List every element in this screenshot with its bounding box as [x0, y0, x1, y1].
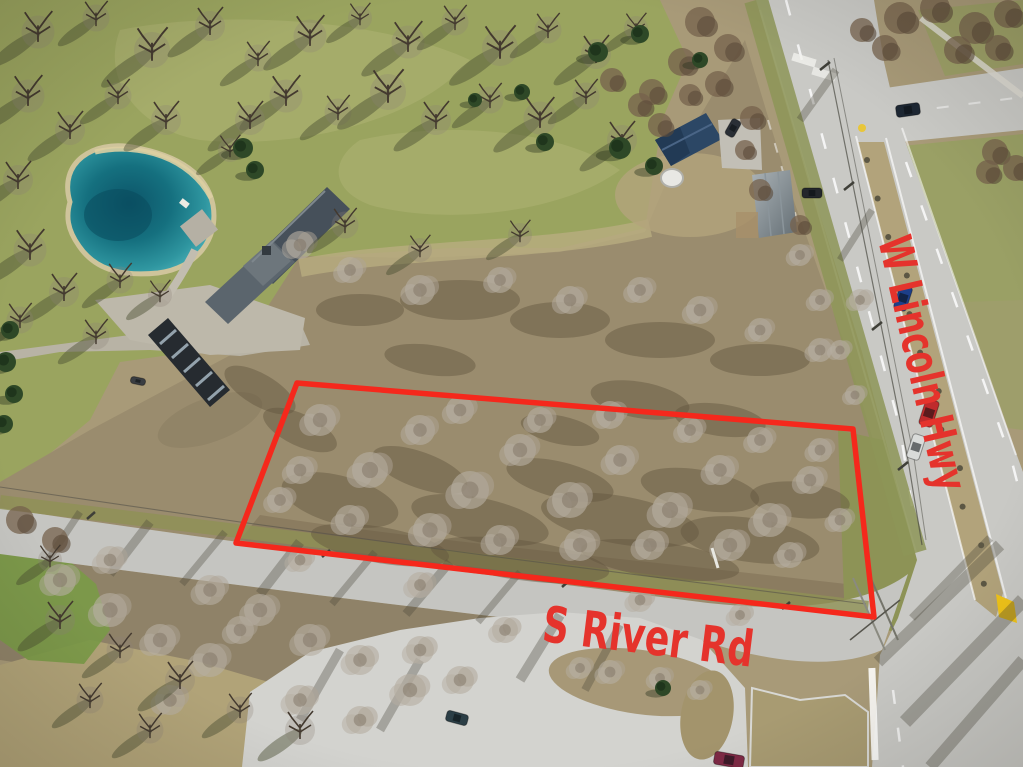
aerial-scene: W Lincoln Hwy S River Rd	[0, 0, 1023, 767]
aerial-photo: W Lincoln Hwy S River Rd	[0, 0, 1023, 767]
vignette	[0, 0, 1023, 767]
